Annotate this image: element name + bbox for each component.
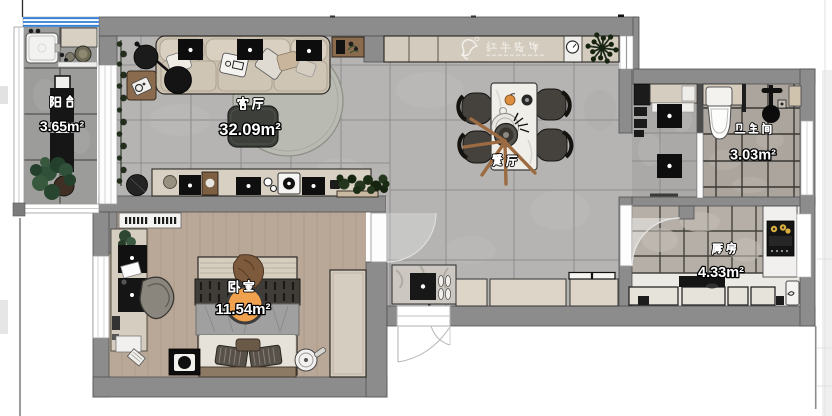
svg-text:32.09m²: 32.09m² <box>219 121 281 139</box>
svg-text:4.33m²: 4.33m² <box>698 265 744 281</box>
svg-text:3.03m²: 3.03m² <box>730 148 776 164</box>
svg-text:11.54m²: 11.54m² <box>215 301 270 318</box>
svg-text:3.65m²: 3.65m² <box>40 118 85 134</box>
